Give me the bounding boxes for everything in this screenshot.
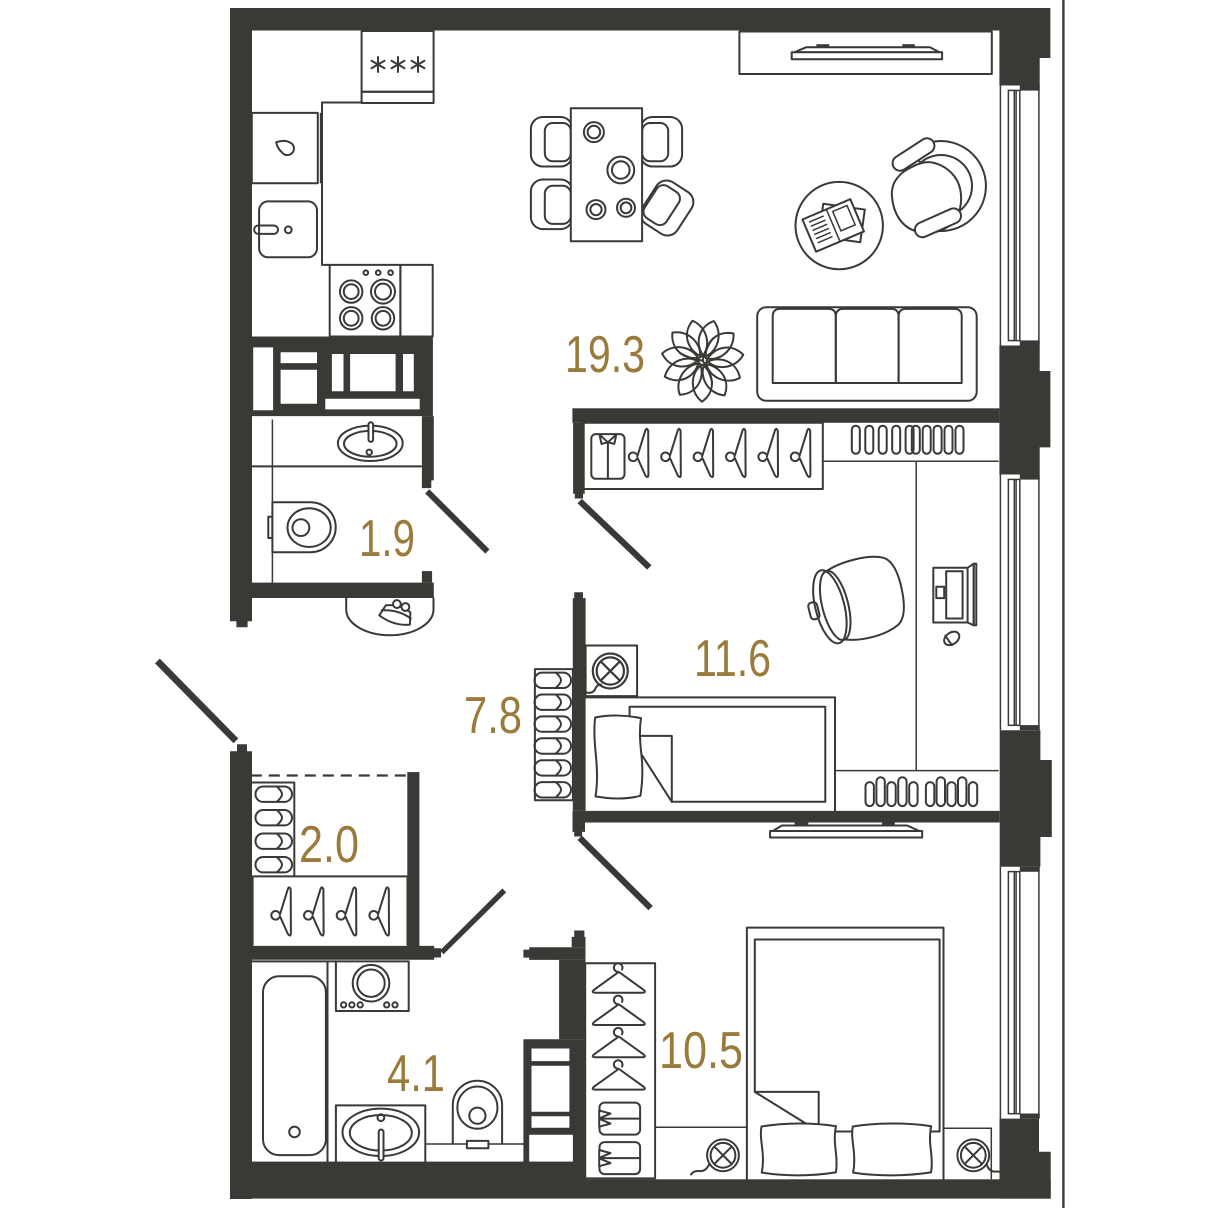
svg-text:2.0: 2.0 bbox=[299, 816, 359, 874]
svg-text:11.6: 11.6 bbox=[694, 630, 771, 688]
svg-text:4.1: 4.1 bbox=[387, 1045, 445, 1103]
svg-text:7.8: 7.8 bbox=[464, 687, 522, 745]
svg-text:10.5: 10.5 bbox=[659, 1022, 743, 1080]
svg-text:19.3: 19.3 bbox=[565, 326, 645, 384]
svg-text:1.9: 1.9 bbox=[359, 510, 415, 568]
